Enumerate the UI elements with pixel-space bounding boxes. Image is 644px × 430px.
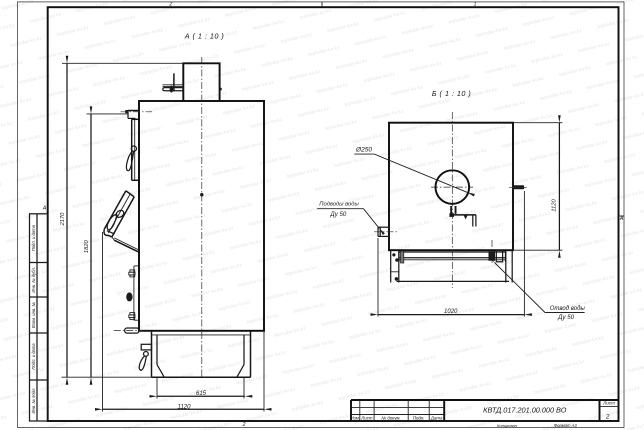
svg-text:Б ( 1 : 10 ): Б ( 1 : 10 ) xyxy=(432,89,471,98)
svg-text:Подп.: Подп. xyxy=(413,416,425,421)
svg-text:2170: 2170 xyxy=(60,212,66,227)
svg-text:Формат А3: Формат А3 xyxy=(554,423,578,428)
svg-text:Лист: Лист xyxy=(602,400,615,405)
svg-text:А ( 1 : 10 ): А ( 1 : 10 ) xyxy=(184,31,225,40)
svg-text:Взам. инв. №: Взам. инв. № xyxy=(31,302,36,328)
svg-text:Изм.: Изм. xyxy=(351,416,360,421)
svg-text:Копировал: Копировал xyxy=(497,423,518,428)
svg-text:№ докум.: № докум. xyxy=(381,416,400,421)
svg-text:А: А xyxy=(42,206,47,212)
svg-text:1120: 1120 xyxy=(178,404,192,410)
svg-text:Отвод воды: Отвод воды xyxy=(550,306,586,312)
svg-text:2: 2 xyxy=(605,414,610,421)
svg-text:1820: 1820 xyxy=(84,239,90,253)
svg-text:А: А xyxy=(619,216,624,222)
svg-text:Ø250: Ø250 xyxy=(355,147,372,154)
svg-text:1020: 1020 xyxy=(444,309,458,315)
svg-text:Подп. и дата: Подп. и дата xyxy=(31,224,36,251)
svg-text:1: 1 xyxy=(474,2,477,8)
svg-text:Дата: Дата xyxy=(430,416,443,421)
svg-text:Подп. и дата: Подп. и дата xyxy=(31,343,36,370)
svg-text:Лист: Лист xyxy=(360,416,373,421)
svg-text:Подводы воды: Подводы воды xyxy=(319,201,359,207)
svg-text:2: 2 xyxy=(168,2,172,8)
svg-text:2: 2 xyxy=(242,422,246,428)
svg-text:615: 615 xyxy=(196,391,207,397)
svg-text:1120: 1120 xyxy=(552,198,558,211)
svg-text:Инв. № дубл.: Инв. № дубл. xyxy=(31,267,36,293)
svg-text:Ду 50: Ду 50 xyxy=(329,211,346,218)
svg-text:Ду 50: Ду 50 xyxy=(557,314,574,321)
svg-text:КВТД.017.201.00.000 ВО: КВТД.017.201.00.000 ВО xyxy=(483,406,567,415)
svg-text:Инв. № подл.: Инв. № подл. xyxy=(31,388,36,414)
